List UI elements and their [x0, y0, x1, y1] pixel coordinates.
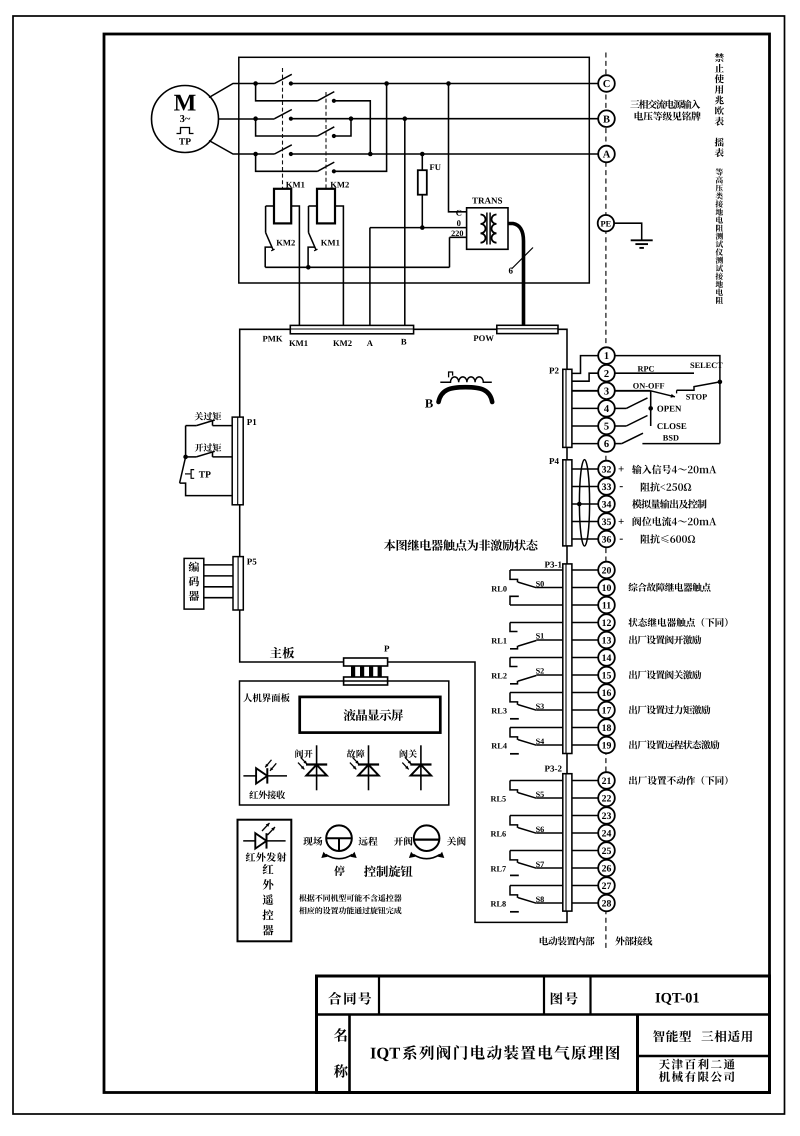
svg-text:S0: S0 [536, 579, 545, 588]
svg-text:6: 6 [509, 266, 514, 276]
svg-text:B: B [603, 114, 610, 125]
svg-text:C: C [603, 79, 611, 90]
svg-text:RL3: RL3 [491, 706, 507, 715]
svg-text:16: 16 [602, 688, 612, 699]
svg-text:RL2: RL2 [491, 671, 507, 680]
svg-text:P1: P1 [247, 417, 257, 427]
svg-text:22: 22 [602, 794, 612, 805]
svg-text:21: 21 [602, 776, 612, 787]
svg-text:KM2: KM2 [330, 179, 349, 189]
svg-text:17: 17 [602, 706, 612, 717]
svg-text:S7: S7 [536, 860, 545, 869]
svg-text:P2: P2 [549, 366, 559, 376]
svg-text:KM1: KM1 [289, 338, 308, 348]
svg-text:S8: S8 [536, 895, 545, 904]
svg-text:2: 2 [604, 369, 609, 380]
svg-text:12: 12 [602, 618, 612, 629]
svg-text:-: - [619, 479, 623, 493]
svg-text:S5: S5 [536, 790, 545, 799]
svg-text:RL4: RL4 [491, 741, 507, 750]
svg-text:10: 10 [602, 583, 612, 594]
svg-text:RL8: RL8 [491, 899, 507, 908]
svg-text:KM1: KM1 [321, 238, 340, 248]
svg-text:26: 26 [602, 864, 612, 875]
svg-text:14: 14 [602, 653, 612, 664]
svg-text:BSD: BSD [663, 434, 679, 443]
svg-text:S1: S1 [536, 632, 545, 641]
svg-text:3: 3 [604, 386, 609, 397]
svg-text:RL0: RL0 [491, 584, 507, 593]
svg-text:13: 13 [602, 636, 612, 647]
svg-text:S4: S4 [536, 737, 545, 746]
svg-text:A: A [367, 338, 374, 348]
svg-text:IQT-01: IQT-01 [655, 991, 700, 1007]
svg-text:18: 18 [602, 723, 612, 734]
svg-text:TRANS: TRANS [472, 196, 503, 206]
svg-text:P: P [384, 644, 390, 654]
svg-text:36: 36 [602, 535, 612, 546]
svg-text:34: 34 [602, 500, 612, 511]
svg-text:ON-OFF: ON-OFF [633, 382, 665, 391]
svg-text:CLOSE: CLOSE [657, 421, 687, 431]
svg-text:25: 25 [602, 846, 612, 857]
svg-text:6: 6 [604, 439, 609, 450]
svg-text:POW: POW [473, 333, 494, 343]
svg-text:11: 11 [602, 601, 611, 612]
svg-text:RL6: RL6 [491, 829, 507, 838]
svg-text:IQT: IQT [370, 1044, 400, 1063]
svg-text:P3-1: P3-1 [545, 560, 563, 570]
svg-text:P3-2: P3-2 [545, 764, 563, 774]
svg-text:+: + [618, 516, 624, 528]
svg-text:220: 220 [451, 229, 463, 238]
svg-text:P4: P4 [549, 456, 559, 466]
svg-text:4: 4 [604, 404, 610, 415]
svg-text:M: M [174, 91, 197, 117]
svg-text:B: B [425, 397, 433, 411]
svg-text:1: 1 [604, 351, 609, 362]
svg-text:KM1: KM1 [286, 179, 305, 189]
svg-text:KM2: KM2 [276, 238, 295, 248]
svg-text:28: 28 [602, 899, 612, 910]
svg-text:33: 33 [602, 482, 612, 493]
svg-text:3~: 3~ [180, 114, 191, 125]
svg-text:S2: S2 [536, 667, 545, 676]
svg-text:24: 24 [602, 829, 612, 840]
svg-text:-: - [619, 531, 623, 545]
svg-text:B: B [401, 337, 407, 347]
svg-text:32: 32 [602, 465, 612, 476]
svg-text:5: 5 [604, 422, 609, 433]
svg-text:RL7: RL7 [491, 864, 507, 873]
svg-text:+: + [618, 464, 624, 476]
svg-text:PE: PE [601, 219, 612, 228]
svg-text:PMK: PMK [262, 334, 282, 344]
svg-text:STOP: STOP [686, 393, 708, 402]
svg-text:S3: S3 [536, 702, 545, 711]
svg-text:RL5: RL5 [491, 794, 507, 803]
svg-text:19: 19 [602, 741, 612, 752]
svg-text:P5: P5 [247, 556, 257, 566]
svg-text:TP: TP [199, 470, 211, 480]
svg-text:0: 0 [457, 218, 461, 228]
svg-text:FU: FU [430, 162, 441, 172]
svg-text:C: C [456, 208, 462, 218]
svg-text:35: 35 [602, 517, 612, 528]
svg-text:27: 27 [602, 881, 612, 892]
svg-text:OPEN: OPEN [657, 403, 682, 413]
svg-text:RL1: RL1 [491, 636, 507, 645]
svg-text:A: A [603, 150, 611, 161]
svg-text:KM2: KM2 [333, 338, 352, 348]
svg-text:TP: TP [179, 138, 191, 148]
svg-text:SELECT: SELECT [690, 361, 723, 370]
svg-text:RPC: RPC [638, 365, 655, 374]
svg-text:20: 20 [602, 566, 612, 577]
svg-text:15: 15 [602, 671, 612, 682]
svg-text:S6: S6 [536, 825, 545, 834]
svg-text:23: 23 [602, 811, 612, 822]
